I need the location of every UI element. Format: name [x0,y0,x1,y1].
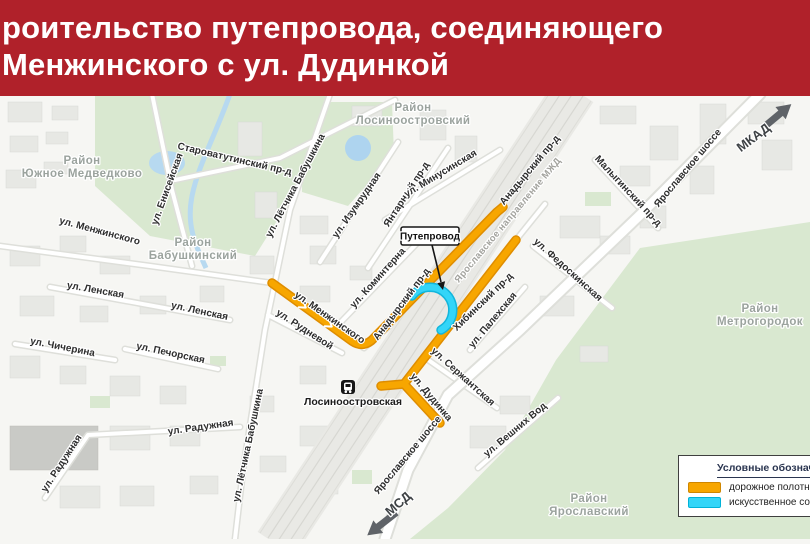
pond [345,135,371,161]
district-metrogorodok: Метрогородок [717,316,803,328]
title-line-2: Менжинского с ул. Дудинкой [2,46,449,83]
district-losinoostrovsky: Лосиноостровский [356,115,471,127]
legend-road-label: дорожное полотно [729,482,810,493]
legend-row-structure: искусственное сооружение [688,497,810,508]
structure-color-swatch [688,497,721,508]
station-icon [341,380,355,394]
district-babushkinsky: Бабушкинский [149,250,237,262]
callout-label: Путепровод [400,232,461,243]
title-line-1: роительство путепровода, соединяющего [2,9,663,46]
road-color-swatch [688,482,721,493]
district-yaroslavsky: Ярославский [549,506,629,518]
district-losinoostrovsky: Район [395,102,432,114]
district-yaroslavsky: Район [571,493,608,505]
district-yuzhnoe-medvedkovo: Район [64,155,101,167]
title-banner: роительство путепровода, соединяющего Ме… [0,0,810,96]
map-legend: Условные обозначения дорожное полотно ис… [678,455,810,517]
district-yuzhnoe-medvedkovo: Южное Медведково [22,168,143,180]
park-patch [585,192,611,206]
legend-title: Условные обозначения [717,462,810,478]
legend-structure-label: искусственное сооружение [729,497,810,508]
legend-row-road: дорожное полотно [688,482,810,493]
station-label: Лосиноостровская [304,396,402,408]
district-babushkinsky: Район [175,237,212,249]
district-metrogorodok: Район [742,303,779,315]
park-patch [352,470,372,484]
park-patch [90,396,110,408]
